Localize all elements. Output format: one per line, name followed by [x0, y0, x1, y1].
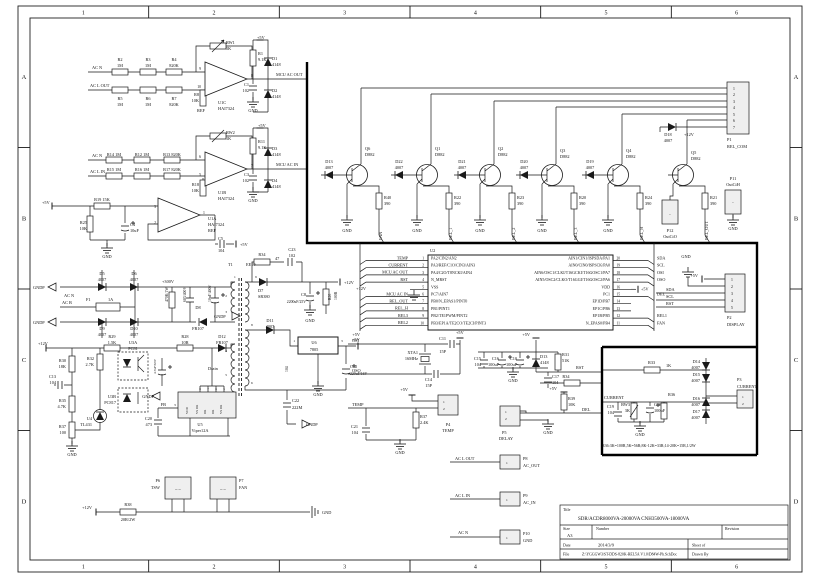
label-10uf: 10uF — [130, 228, 139, 233]
label-5: 5 — [733, 113, 735, 117]
mcu-pin-3: 3 — [422, 271, 424, 275]
label-r19-15k: R19 15K — [94, 197, 111, 202]
label-+12v: +12V — [356, 286, 367, 291]
label-rel-h: REL_H — [639, 227, 644, 240]
label-u6: U6 — [311, 340, 317, 345]
label-c23: C23 — [288, 247, 295, 252]
label-1m: 1M — [145, 63, 151, 68]
mcu-pin-name-10: PB3/EP1A/TE2CO/TE2CI/PINT3 — [431, 320, 486, 325]
label-+5v: +5V — [352, 332, 361, 337]
label-tl431: TL431 — [80, 422, 92, 427]
label-+12v: +12V — [38, 341, 49, 346]
label-4007: 4007 — [98, 332, 107, 337]
label-d22: D22 — [395, 159, 402, 164]
label-4007: 4007 — [98, 277, 107, 282]
label-r39: R39 — [568, 396, 575, 401]
label-4007: 4007 — [130, 332, 139, 337]
label-d2: D2 — [272, 88, 277, 93]
label-hai7324: HAI7324 — [208, 222, 225, 227]
label-gndp: GNDP — [33, 285, 45, 290]
label-4-7uf-63v: 4.7uF/63V — [153, 358, 157, 374]
label-gnd: GND — [313, 392, 322, 397]
label-gnd: GND — [681, 254, 690, 259]
label-display: DISPLAY — [727, 322, 745, 327]
label-r23: R23 — [517, 195, 524, 200]
label-1: 1 — [443, 400, 445, 404]
net-mcu-ac-in: MCU AC IN — [386, 291, 408, 296]
mcu-pin-14: 14 — [617, 300, 621, 304]
label-ac-l-out: AC L OUT — [455, 456, 475, 461]
label-u4: U4 — [87, 416, 93, 421]
label-2: 2 — [742, 402, 744, 406]
mcu-pin-name-5: VSS — [431, 284, 438, 289]
label-rw3: RW3 — [621, 402, 630, 407]
net-oso: OSO — [657, 277, 665, 282]
label-d882: D882 — [365, 152, 375, 157]
label--: ~ ~ — [220, 487, 226, 492]
mcu-pin-12: 12 — [617, 314, 621, 318]
mcu-pin-7: 7 — [422, 300, 424, 304]
label-2200uf-25v: 2200uF/25V — [287, 300, 306, 304]
label-p5: P5 — [502, 430, 507, 435]
label-u3a: U3A — [129, 340, 138, 345]
label-8: 8 — [251, 323, 253, 327]
label-104: 104 — [552, 380, 559, 385]
label-vs-dr: VS DR — [219, 404, 223, 414]
label-xta1: XTA1 — [407, 350, 418, 355]
label-5: 5 — [731, 306, 733, 310]
label-5: 5 — [225, 373, 227, 377]
label-gndp: GNDP — [306, 422, 318, 427]
label-p1: P1 — [727, 137, 732, 142]
label-4007: 4007 — [691, 415, 700, 420]
label-16mhz: 16MHz — [405, 356, 418, 361]
label-r33: R33 — [648, 360, 655, 365]
label-r35: R35 — [59, 398, 66, 403]
file-label: File — [563, 552, 569, 557]
label-r17-820k: R17 820K — [163, 167, 182, 172]
label-delay: DELAY — [499, 436, 513, 441]
label-ac-n: AC N — [92, 153, 102, 158]
label-100uf: 100uF — [654, 408, 666, 413]
mcu-pin-name-2: PA3/REF/C1O/CIN3/AIN3 — [431, 263, 475, 268]
label-102: 102 — [243, 88, 249, 93]
frame-col-1: 1 — [82, 11, 85, 17]
label-c5: C5 — [218, 236, 223, 241]
label-1m: 1M — [145, 102, 151, 107]
label-mcu-ac-out: MCU AC OUT — [276, 72, 303, 77]
label-gnd: GND — [342, 228, 351, 233]
label-q3: Q3 — [560, 148, 565, 153]
label-r11: R11 — [258, 139, 265, 144]
mcu-pin-18: 18 — [617, 271, 621, 275]
mcu-pin-2: 2 — [422, 264, 424, 268]
label-ac-in: AC_IN — [523, 500, 536, 505]
label-d4: D4 — [272, 178, 278, 183]
label-r38: R38 — [124, 502, 131, 507]
label-d5: D5 — [99, 271, 104, 276]
label-3: 3 — [731, 292, 733, 296]
label-c21: C21 — [351, 424, 358, 429]
label-outcth: OutCtH — [726, 182, 740, 187]
label-15p: 15P — [425, 383, 432, 388]
net-rel_h: REL_H — [395, 306, 408, 311]
sheet-file-path: Z:\YGGGW3\ST-DDS-820K-REL5A V1.0\D84W-Pb… — [582, 553, 677, 557]
label-c8: C8 — [301, 292, 306, 297]
frame-col-5: 5 — [605, 565, 608, 571]
label-4007: 4007 — [691, 365, 700, 370]
net-scl: SCL — [657, 263, 665, 268]
label-c22: C22 — [292, 398, 299, 403]
label-104: 104 — [608, 410, 615, 415]
label-+5v: +5V — [257, 35, 266, 40]
label-5k: 5K — [226, 46, 232, 51]
label-222m: 222M — [292, 405, 302, 410]
label-9-1k: 9.1K — [258, 145, 267, 150]
label-q6: Q6 — [365, 146, 371, 151]
label-+5v: +5V — [522, 332, 531, 337]
label-c1: C1 — [244, 82, 249, 87]
mcu-pin-name-12: EP1B/PB5 — [593, 313, 610, 318]
label-fan: FAN — [378, 232, 383, 240]
label-4-7k: 4.7K — [58, 404, 67, 409]
label-ac-b: AC B — [62, 300, 72, 305]
label-q4: Q4 — [626, 148, 632, 153]
label-ac-n: AC N — [64, 293, 74, 298]
label-4: 4 — [225, 349, 227, 353]
label-d882: D882 — [435, 152, 445, 157]
label-q5: Q5 — [691, 150, 696, 155]
mcu-pin-20: 20 — [617, 257, 621, 261]
label-1k: 1K — [226, 136, 232, 141]
frame-col-5: 5 — [605, 11, 608, 17]
label-51k: 51K — [562, 358, 570, 363]
frame-row-D: D — [794, 498, 799, 505]
label-t1: T1 — [228, 262, 233, 267]
label-4: 4 — [733, 106, 735, 110]
label-1: 1 — [203, 211, 205, 215]
label-r36: R36 — [668, 392, 676, 397]
label-100: 100 — [60, 430, 66, 435]
label-rw1: RW1 — [226, 40, 235, 45]
label-p10: P10 — [523, 531, 530, 536]
label-sr380: SR380 — [258, 294, 270, 299]
drawn-by-label: Drawn By — [692, 552, 709, 557]
label-2: 2 — [505, 417, 507, 421]
label-rw2: RW2 — [226, 130, 235, 135]
label-r1: R1 — [258, 51, 263, 56]
frame-row-B: B — [794, 215, 799, 222]
label-u5: U5 — [197, 422, 202, 427]
label-p11: P11 — [730, 176, 737, 181]
label-fb: FB — [161, 402, 166, 407]
mcu-pin-11: 11 — [617, 321, 621, 325]
label-+12v: +12V — [344, 280, 355, 285]
label-r7: R7 — [171, 96, 177, 101]
label-d20: D20 — [520, 159, 527, 164]
label-104: 104 — [285, 366, 289, 372]
mcu-pin-9: 9 — [422, 314, 424, 318]
label-r30: R30 — [59, 358, 66, 363]
label-+5v: +5V — [240, 242, 249, 247]
label-4007: 4007 — [691, 378, 700, 383]
label-+5v: +5V — [258, 123, 267, 128]
label-gnd: GND — [537, 228, 546, 233]
label-102: 102 — [243, 178, 249, 183]
label-6: 6 — [733, 119, 735, 123]
label-4007: 4007 — [130, 277, 139, 282]
frame-col-3: 3 — [343, 565, 346, 571]
label-473: 473 — [146, 422, 152, 427]
label-c14: C14 — [425, 377, 433, 382]
frame-col-1: 1 — [82, 565, 85, 571]
label-rst: RST — [576, 365, 584, 370]
label-6: 6 — [199, 155, 201, 159]
label-2: 2 — [731, 285, 733, 289]
label-r26: R26 — [328, 294, 332, 300]
label-390: 390 — [454, 201, 460, 206]
label-gnd: GND — [508, 378, 517, 383]
label-p2: P2 — [727, 315, 732, 320]
label-4148: 4148 — [272, 152, 281, 157]
label-1: 1 — [731, 278, 733, 282]
label-vs-dr: VS DR — [195, 404, 199, 414]
label-10k: 10K — [192, 98, 200, 103]
label-r34: R34 — [562, 374, 570, 379]
label-1: 1 — [742, 395, 744, 399]
mcu-pin-name-8: PB1/PINT1 — [431, 306, 450, 311]
label-9: 9 — [199, 67, 201, 71]
label-10k: 10K — [80, 226, 88, 231]
frame-col-4: 4 — [474, 565, 477, 571]
label-r37: R37 — [59, 424, 67, 429]
label-scl: SCL — [666, 294, 674, 299]
label-9: 9 — [255, 275, 257, 279]
label-ac-l-out: AC L OUT — [90, 83, 110, 88]
mcu-pin-4: 4 — [422, 278, 424, 282]
frame-row-A: A — [794, 74, 799, 81]
label-r25: R25 — [80, 220, 87, 225]
label-1: 1 — [234, 275, 236, 279]
label-c13: C13 — [49, 374, 56, 379]
label-c19: C19 — [607, 404, 614, 409]
label-20r-2w: 20R/2W — [121, 517, 137, 522]
label-ref: REF — [197, 108, 205, 113]
label-ac-out: AC_OUT — [523, 463, 540, 468]
label-current: CURRENT — [604, 395, 624, 400]
mcu-pin-19: 19 — [617, 264, 621, 268]
mcu-pin-8: 8 — [422, 307, 424, 311]
mcu-pin-name-17: AIN5/OSC2/CLKO/T16GGI/T16GOSC2/PA6 — [535, 277, 610, 282]
label-gnd: GND — [543, 430, 552, 435]
net-fan: FAN — [657, 320, 665, 325]
mcu-pin-name-16: VDD — [601, 284, 610, 289]
label-c10: C10 — [510, 356, 517, 361]
label-9-1k: 9.1K — [258, 57, 267, 62]
label-r37: R37 — [420, 414, 428, 419]
label-4: 4 — [731, 299, 733, 303]
label-r32: R32 — [87, 356, 94, 361]
mcu-pin-name-6: PC7/AIN7 — [431, 292, 448, 297]
label-rst: RST — [666, 301, 674, 306]
label-gndp: GNDP — [33, 320, 45, 325]
label-3: 3 — [733, 100, 735, 104]
label-6: 6 — [251, 381, 253, 385]
label-gnd: GND — [248, 198, 257, 203]
mcu-pin-name-3: PA4/C2O/T8NCKI/AIN4 — [431, 270, 472, 275]
label-r24: R24 — [645, 195, 653, 200]
label-390: 390 — [710, 201, 716, 206]
label-sda: SDA — [666, 287, 675, 292]
label-vdd: VDD — [185, 406, 189, 414]
label-7: 7 — [251, 164, 253, 168]
label-1: 1 — [293, 339, 295, 343]
label-d19: D19 — [586, 159, 593, 164]
label-c18: C18 — [654, 402, 661, 407]
net-sda: SDA — [657, 256, 665, 261]
frame-col-2: 2 — [213, 11, 216, 17]
label-ref: REF — [208, 228, 216, 233]
label-4007: 4007 — [664, 138, 673, 143]
label-4007: 4007 — [325, 165, 334, 170]
label-r2: R2 — [117, 57, 122, 62]
label-gnd: GND — [475, 228, 484, 233]
label-rel-com: REL_COM — [727, 144, 747, 149]
label-4007: 4007 — [586, 165, 595, 170]
label-2: 2 — [443, 407, 445, 411]
label-ee19: EE19 — [246, 262, 256, 267]
mcu-pin-name-7: PB0/N_EPAS1/PINT0 — [431, 299, 467, 304]
net-rel2: REL2 — [398, 320, 408, 325]
net-rel3: REL3 — [398, 313, 408, 318]
label-4148: 4148 — [272, 62, 281, 67]
label-4007: 4007 — [395, 165, 404, 170]
label-4007: 4007 — [266, 324, 275, 329]
label-rel-3: REL_3 — [573, 228, 578, 240]
schematic-page: AC NAC L OUTR21MR31MR4820KR51MR61MR7820K… — [0, 0, 820, 579]
label-d9: D9 — [99, 326, 104, 331]
label-fr107: FR107 — [216, 340, 229, 345]
date-label: Date — [563, 543, 571, 548]
label-q2: Q2 — [498, 146, 503, 151]
label-ac-n: AC N — [458, 530, 468, 535]
label-104: 104 — [352, 430, 359, 435]
label-u1b: U1B — [218, 190, 226, 195]
frame-row-D: D — [22, 498, 27, 505]
label-r28: R28 — [181, 334, 188, 339]
label-pc817: PC817 — [104, 400, 117, 405]
label-10uf-400v: 10uF/400V — [208, 284, 212, 302]
label-oso: OSO — [352, 368, 361, 373]
frame-col-4: 4 — [474, 11, 477, 17]
label-470k-1w: 470K/1W — [165, 287, 169, 302]
label-d21: D21 — [458, 159, 465, 164]
label-100uf: 100uF — [488, 362, 500, 367]
label-3: 3 — [174, 403, 176, 407]
label-r5: R5 — [117, 96, 122, 101]
label-r16-1m: R16 1M — [135, 167, 149, 172]
mcu-pin-1: 1 — [422, 257, 424, 261]
label-p8: P8 — [523, 456, 528, 461]
label-r22: R22 — [454, 195, 461, 200]
label-100uf: 100uF — [506, 362, 518, 367]
label-q1: Q1 — [435, 146, 440, 151]
label-4007: 4007 — [458, 165, 467, 170]
label-3: 3 — [225, 310, 227, 314]
label-2: 2 — [225, 294, 227, 298]
label-f1: F1 — [86, 297, 91, 302]
mcu-pin-name-1: PA2/CIN2/AN2 — [431, 256, 457, 261]
label-2: 2 — [154, 221, 156, 225]
label-u1a: U1A — [208, 216, 217, 221]
label-drain: Drain — [208, 366, 219, 371]
label-p12: P12 — [667, 228, 674, 233]
label-100r: 100R — [334, 291, 338, 300]
mcu-pin-16: 16 — [617, 285, 621, 289]
label-r31: R31 — [562, 352, 569, 357]
label-r18: R18 — [192, 182, 199, 187]
label-rel-1: REL_1 — [448, 228, 453, 240]
label-u1c: U1C — [218, 100, 226, 105]
title-label: Title — [563, 507, 571, 512]
label-1k: 1K — [666, 363, 672, 368]
label-2-4k: 2.4K — [420, 420, 429, 425]
label-rel-2: REL_2 — [511, 228, 516, 240]
label-c16: C16 — [492, 356, 500, 361]
label-+12v: +12V — [684, 132, 695, 137]
net-mcu-ac-out: MCU AC OUT — [382, 270, 408, 275]
label-gnd: GND — [635, 432, 644, 437]
frame-col-6: 6 — [735, 11, 738, 17]
label-820k: 820K — [169, 63, 179, 68]
label-+300v: +300V — [162, 279, 175, 284]
label-outcto: OutCtO — [663, 234, 677, 239]
mcu-pin-name-11: N_EPAS0/PB4 — [586, 320, 610, 325]
label-5: 5 — [199, 173, 201, 177]
label-c4: C4 — [130, 222, 136, 227]
label-1m: 1M — [117, 63, 123, 68]
label-10: 10 — [197, 85, 201, 89]
label-4148: 4148 — [540, 360, 549, 365]
net-rel1: REL1 — [657, 313, 667, 318]
label-gnd: GND — [603, 228, 612, 233]
frame-row-C: C — [794, 357, 798, 364]
label-104: 104 — [475, 362, 482, 367]
label-ac-l-in: AC L IN — [455, 493, 470, 498]
label-r40: R40 — [384, 195, 391, 200]
label-gnd: GND — [412, 228, 421, 233]
label-10r: 10R — [181, 340, 188, 345]
label-ac-n: AC N — [92, 65, 102, 70]
label-r3: R3 — [145, 57, 150, 62]
label-r14-1m: R14 1M — [107, 152, 121, 157]
label-pc81: PC81 — [128, 346, 138, 351]
label-del: DEL — [582, 407, 591, 412]
label-+5v: +5V — [456, 330, 465, 335]
sheet-date: 2014/3/9 — [598, 543, 615, 548]
label-r34: R34 — [258, 252, 266, 257]
label-d11: D11 — [266, 318, 273, 323]
label-gnd: GND — [102, 254, 111, 259]
label-+5v: +5V — [549, 386, 558, 391]
frame-col-6: 6 — [735, 565, 738, 571]
label-d882: D882 — [626, 154, 636, 159]
label-r21: R21 — [710, 195, 717, 200]
label-4007: 4007 — [691, 402, 700, 407]
schematic-canvas: AC NAC L OUTR21MR31MR4820KR51MR61MR7820K… — [0, 0, 820, 579]
mcu-pin-name-18: AIN6/OSC1/CLKI/T16GCKI/T16GOSC1/PA7 — [534, 270, 610, 275]
label-d17: D17 — [693, 409, 701, 414]
